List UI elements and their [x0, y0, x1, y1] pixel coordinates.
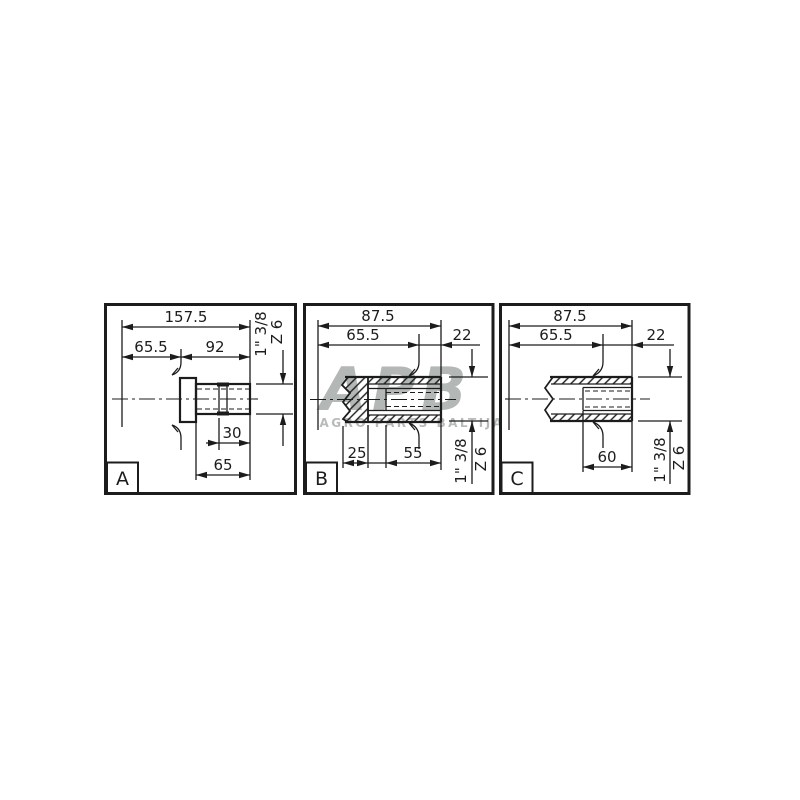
pto-adapter-drawing: APB AGRO PARTS BALTIJA 157.5 65.5 92 30 … [0, 0, 800, 800]
panel-c: 87.5 65.5 22 60 1" 3/8 Z 6 C [501, 305, 690, 494]
dim-c-total: 87.5 [553, 307, 586, 325]
sleeve-top-wall-hatch [368, 378, 441, 384]
dim-b-spline-length: 55 [403, 444, 422, 462]
panel-a-part [112, 378, 258, 422]
dim-a-groove: 30 [222, 424, 241, 442]
panel-c-label: C [510, 468, 523, 490]
dim-a-left: 65.5 [134, 338, 167, 356]
panel-c-dimensions: 87.5 65.5 22 60 1" 3/8 Z 6 [509, 307, 688, 484]
dim-c-spline-teeth: Z 6 [670, 446, 688, 471]
dim-b-left: 65.5 [346, 326, 379, 344]
dim-b-bore-depth: 25 [347, 444, 366, 462]
dim-c-spline-length: 60 [597, 448, 616, 466]
dim-b-total: 87.5 [361, 307, 394, 325]
dim-a-total: 157.5 [165, 308, 208, 326]
panel-a: 157.5 65.5 92 30 65 1" 3/8 Z 6 A [106, 305, 296, 494]
panel-c-part [505, 377, 650, 421]
panel-a-label: A [116, 468, 129, 490]
sleeve-bottom-wall-hatch [368, 416, 441, 422]
tube-top-wall-hatch [552, 378, 632, 384]
dim-a-right: 92 [205, 338, 224, 356]
dim-c-spline-size: 1" 3/8 [651, 437, 669, 482]
dim-b-right: 22 [452, 326, 471, 344]
panel-c-label-box: C [502, 463, 533, 494]
panel-a-label-box: A [107, 463, 138, 494]
panel-c-dimension-lines [509, 326, 674, 484]
technical-drawing-page: APB AGRO PARTS BALTIJA 157.5 65.5 92 30 … [0, 0, 800, 800]
dim-a-spline-teeth: Z 6 [268, 320, 286, 345]
panel-b-label: B [315, 468, 328, 490]
dim-b-spline-teeth: Z 6 [472, 447, 490, 472]
panel-b-label-box: B [306, 463, 337, 494]
shaft-flange [180, 378, 196, 422]
dim-a-spline-length: 65 [213, 456, 232, 474]
panel-a-dimensions: 157.5 65.5 92 30 65 1" 3/8 Z 6 [122, 308, 293, 480]
tube-bottom-wall-hatch [552, 415, 632, 421]
sleeve-solid-section [342, 377, 368, 422]
dim-c-right: 22 [646, 326, 665, 344]
dim-c-left: 65.5 [539, 326, 572, 344]
dim-b-spline-size: 1" 3/8 [452, 438, 470, 483]
